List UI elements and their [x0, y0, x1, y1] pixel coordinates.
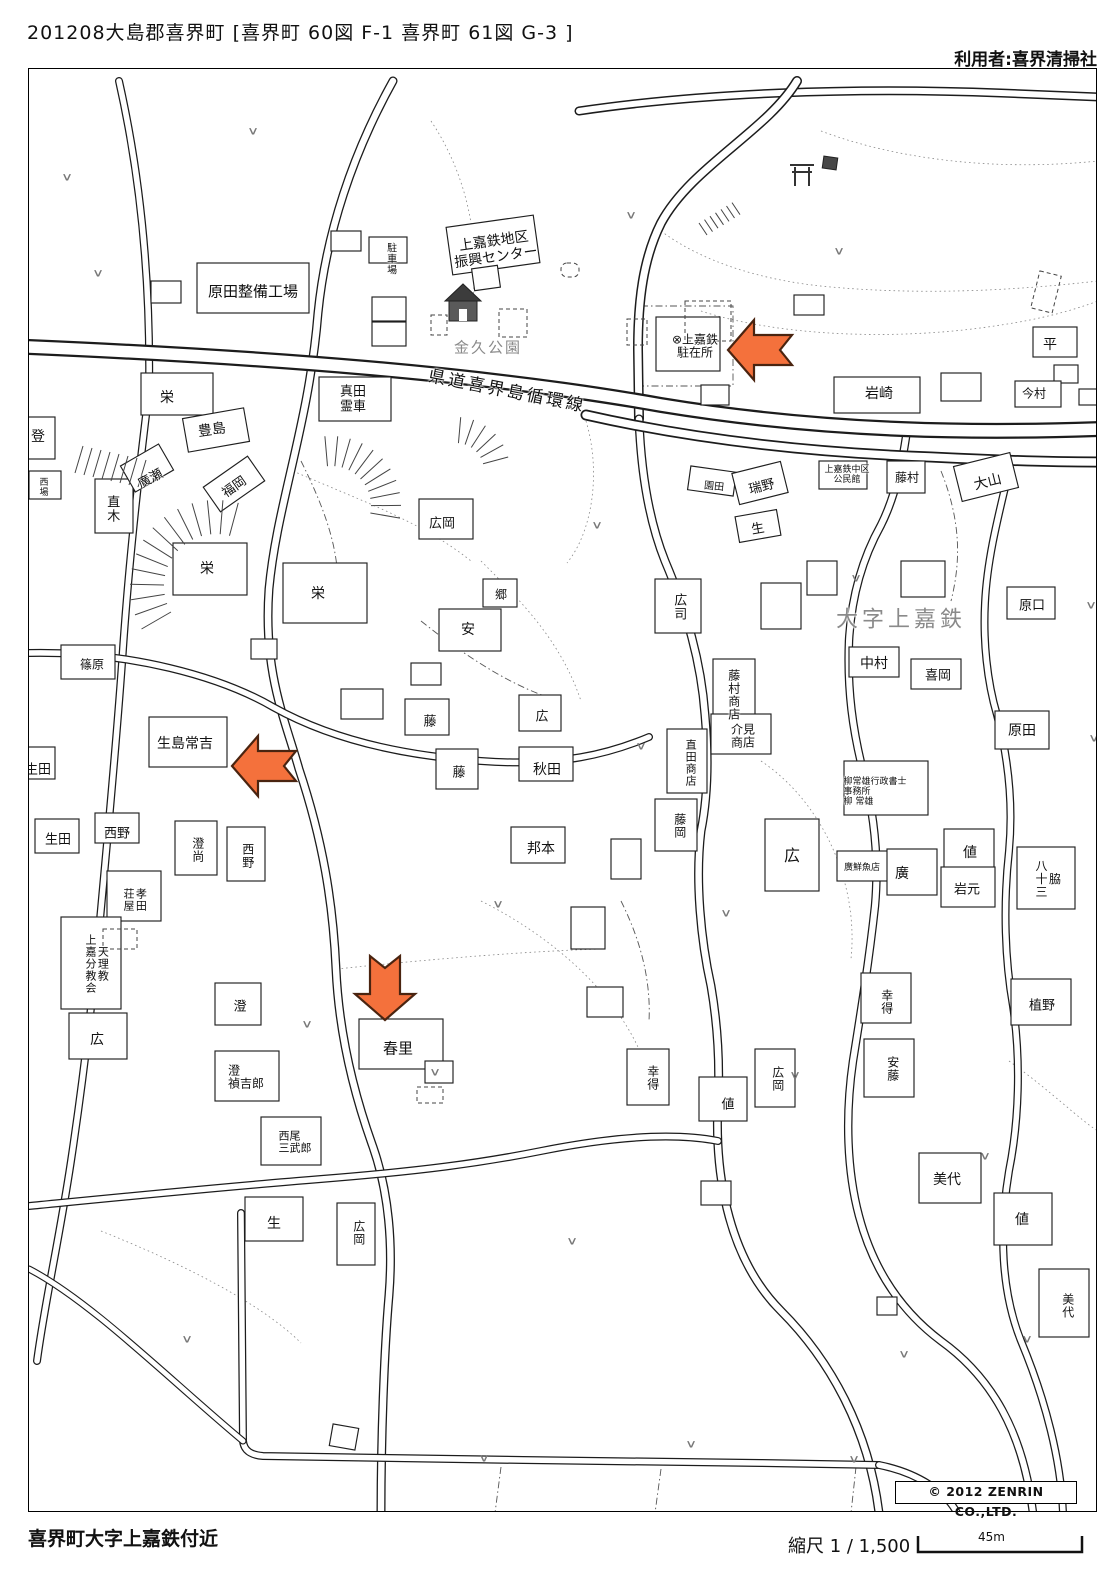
map-label: 西野: [240, 843, 253, 869]
vegetation-mark: ∨: [247, 125, 259, 138]
vegetation-mark: ∨: [429, 1066, 441, 1079]
map-label: 藤村: [895, 471, 919, 484]
map-label: 廣: [895, 867, 909, 883]
map-label: 広: [784, 847, 800, 865]
map-label: 秋田: [533, 763, 561, 779]
map-label: 西尾 三武郎: [279, 1131, 312, 1156]
vegetation-mark: ∨: [478, 1452, 490, 1465]
vegetation-mark: ∨: [1085, 599, 1097, 612]
map-label: 廣鮮魚店: [844, 863, 880, 873]
map-label: 栄: [311, 587, 325, 603]
vegetation-mark: ∨: [685, 1438, 697, 1451]
footer-area-name: 喜界町大字上嘉鉄付近: [28, 1524, 218, 1551]
map-label: 郷: [495, 588, 507, 601]
map-label: 生: [267, 1217, 281, 1233]
vegetation-mark: ∨: [492, 898, 504, 911]
vegetation-mark: ∨: [720, 907, 732, 920]
map-label: 幸得: [879, 989, 892, 1015]
map-label: 生田: [45, 834, 71, 849]
vegetation-mark: ∨: [92, 267, 104, 280]
map-label: 西 場: [39, 478, 48, 498]
map-label: 美代: [1060, 1293, 1073, 1319]
map-label: 西野: [104, 828, 130, 843]
map-label: 直木: [104, 495, 119, 523]
map-user-name: 利用者:喜界清掃社: [954, 45, 1097, 70]
map-label: 栄: [160, 391, 174, 407]
map-label: 平: [1043, 338, 1057, 354]
map-sheet-title: 201208大島郡喜界町 [喜界町 60図 F-1 喜界町 61図 G-3 ]: [27, 18, 574, 45]
map-label: 広岡: [429, 518, 455, 533]
map-label: 岩元: [954, 884, 980, 899]
map-label: 生島常吉: [157, 737, 213, 753]
map-canvas: 原田整備工場駐車場上嘉鉄地区 振興センター金久公園県道喜界島循環線⊗上嘉鉄 駐在…: [28, 68, 1097, 1512]
map-label: 広岡: [351, 1220, 364, 1246]
map-label: 園田: [703, 480, 724, 493]
map-label: 値: [1015, 1213, 1029, 1229]
vegetation-mark: ∨: [181, 1333, 193, 1346]
map-label: 安藤: [885, 1056, 898, 1082]
map-label: 真田 霊車: [340, 385, 366, 414]
map-label: 栄: [200, 562, 214, 578]
map-label: 孝田 荘屋: [122, 888, 147, 912]
map-label: 今村: [1022, 387, 1046, 400]
vegetation-mark: ∨: [1088, 732, 1097, 745]
map-label: 値: [963, 846, 977, 862]
highlight-arrow: [725, 315, 795, 385]
vegetation-mark: ∨: [979, 1150, 991, 1163]
vegetation-mark: ∨: [566, 1235, 578, 1248]
vegetation-mark: ∨: [848, 1453, 860, 1466]
map-label: 澄尚: [190, 837, 203, 863]
map-label: 澄: [233, 1001, 246, 1016]
map-label: 植野: [1029, 1000, 1055, 1015]
map-label: 藤: [423, 716, 436, 731]
map-label: 原口: [1019, 600, 1045, 615]
copyright-badge: © 2012 ZENRIN CO.,LTD.: [895, 1481, 1077, 1504]
highlight-arrow: [229, 731, 299, 801]
map-label: 金久公園: [454, 340, 522, 357]
vegetation-mark: ∨: [1021, 1333, 1033, 1346]
map-label: 広: [535, 711, 548, 726]
map-label: 喜岡: [925, 670, 951, 685]
torii-icon: [790, 165, 814, 186]
map-label: 生: [750, 522, 765, 539]
vegetation-mark: ∨: [625, 209, 637, 222]
map-label: 篠原: [80, 658, 104, 671]
map-label: 生田: [28, 764, 51, 779]
map-graphics: [28, 68, 1097, 1512]
map-label: 澄 禎吉郎: [228, 1065, 264, 1092]
map-label: 原田: [1008, 724, 1036, 740]
map-label: 直田商店: [684, 739, 696, 787]
map-label: 原田整備工場: [208, 284, 298, 301]
map-label: 藤村商店: [726, 669, 739, 721]
vegetation-mark: ∨: [301, 1018, 313, 1031]
map-label: 駐車場: [384, 243, 395, 276]
vegetation-mark: ∨: [789, 1069, 801, 1082]
map-label: 幸得: [645, 1065, 658, 1091]
vegetation-mark: ∨: [898, 1348, 910, 1361]
map-label: 登: [31, 430, 45, 446]
map-label: ⊗上嘉鉄 駐在所: [672, 334, 718, 361]
map-label: 上嘉鉄中区 公民館: [824, 465, 869, 485]
vegetation-mark: ∨: [591, 519, 603, 532]
map-print-page: { "header": { "title": "201208大島郡喜界町 [喜界…: [0, 0, 1111, 1572]
scale-distance-label: 45m: [978, 1530, 1005, 1544]
map-label: 値: [721, 1099, 734, 1114]
map-label: 美代: [933, 1173, 961, 1189]
map-label: 大字上嘉鉄: [836, 609, 966, 634]
map-label: 広司: [671, 593, 686, 621]
map-label: 春里: [383, 1041, 413, 1058]
map-label: 藤: [452, 767, 465, 782]
map-label: 介見 商店: [731, 724, 755, 751]
vegetation-mark: ∨: [833, 245, 845, 258]
map-label: 岩崎: [865, 387, 893, 403]
vegetation-mark: ∨: [61, 171, 73, 184]
vegetation-mark: ∨: [850, 572, 862, 585]
shrine-building-icon: [822, 156, 838, 170]
map-label: 柳常雄行政書士 事務所 柳 常雄: [843, 777, 906, 807]
map-label: 中村: [860, 657, 888, 673]
vegetation-mark: ∨: [635, 740, 647, 753]
highlight-arrow: [350, 952, 420, 1022]
map-label: 藤岡: [672, 813, 685, 839]
map-label: 安: [461, 623, 475, 639]
map-label: 広: [90, 1033, 104, 1049]
map-label: 脇 八十三: [1034, 860, 1061, 899]
map-label: 邦本: [527, 842, 555, 858]
map-label: 天理教 上嘉分教会: [84, 934, 109, 994]
scale-ratio-label: 縮尺 1 / 1,500: [788, 1532, 910, 1558]
map-label: 広岡: [770, 1066, 783, 1092]
